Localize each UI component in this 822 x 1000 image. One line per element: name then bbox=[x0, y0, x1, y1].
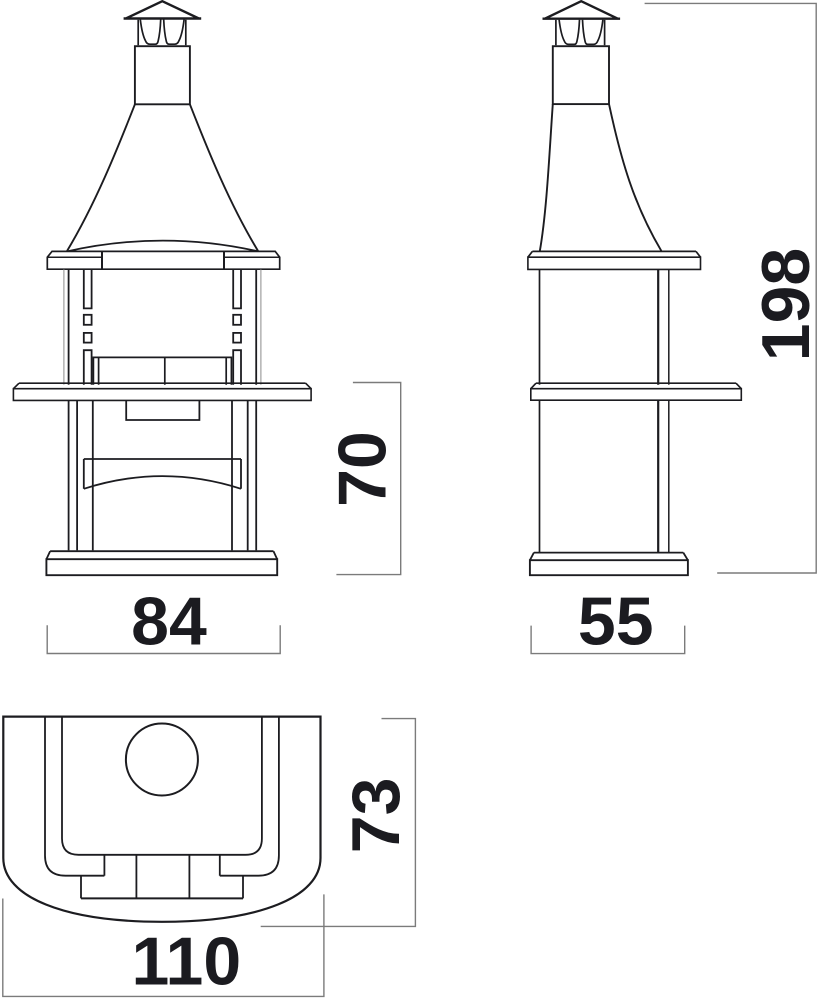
svg-text:73: 73 bbox=[338, 778, 414, 854]
svg-text:70: 70 bbox=[325, 431, 401, 507]
svg-text:198: 198 bbox=[748, 248, 822, 361]
svg-text:84: 84 bbox=[131, 583, 207, 659]
svg-text:110: 110 bbox=[131, 923, 241, 999]
svg-text:55: 55 bbox=[578, 583, 654, 659]
